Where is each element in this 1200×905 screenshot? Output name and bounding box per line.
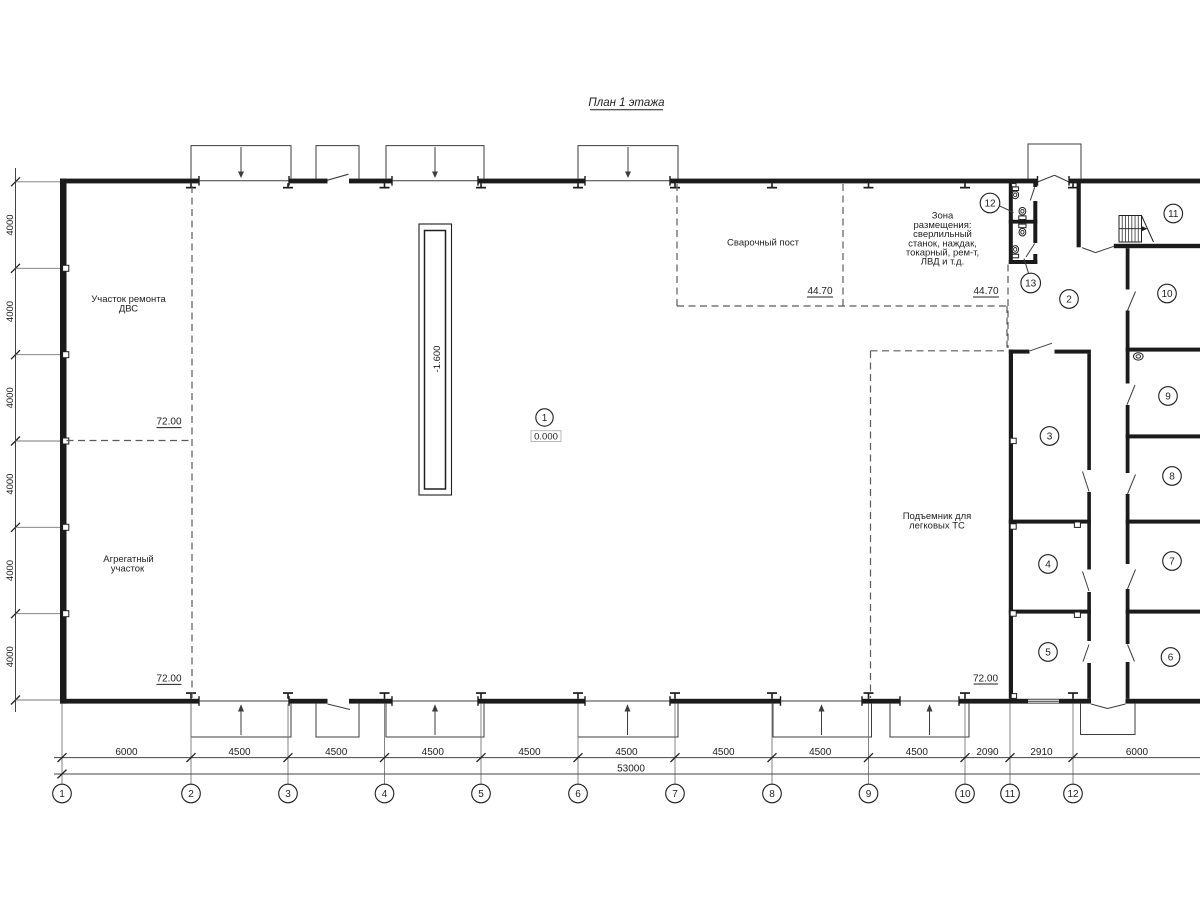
svg-text:44.70: 44.70 [973, 286, 998, 297]
svg-text:13: 13 [1025, 278, 1037, 289]
svg-text:9: 9 [866, 789, 872, 800]
svg-text:4500: 4500 [518, 747, 541, 758]
svg-text:легковых ТС: легковых ТС [909, 521, 965, 532]
svg-text:7: 7 [1169, 556, 1175, 567]
svg-text:4500: 4500 [712, 747, 735, 758]
svg-text:53000: 53000 [617, 764, 645, 775]
svg-text:5: 5 [478, 789, 484, 800]
svg-text:4000: 4000 [5, 214, 16, 235]
svg-text:4000: 4000 [5, 301, 16, 322]
svg-text:6: 6 [1168, 652, 1174, 663]
svg-text:-1.600: -1.600 [432, 346, 443, 373]
svg-text:2: 2 [1066, 294, 1072, 305]
svg-text:44.70: 44.70 [807, 286, 832, 297]
svg-text:5: 5 [1045, 647, 1051, 658]
svg-text:11: 11 [1005, 789, 1016, 800]
svg-text:8: 8 [769, 789, 775, 800]
svg-text:6: 6 [575, 789, 581, 800]
svg-text:72.00: 72.00 [973, 674, 998, 685]
svg-text:8: 8 [1169, 471, 1175, 482]
svg-text:4000: 4000 [5, 474, 16, 495]
svg-text:12: 12 [1067, 789, 1079, 800]
svg-text:4500: 4500 [615, 747, 638, 758]
svg-text:4500: 4500 [228, 747, 251, 758]
svg-text:4000: 4000 [5, 646, 16, 667]
svg-text:4000: 4000 [5, 560, 16, 581]
svg-text:1: 1 [59, 789, 65, 800]
svg-text:9: 9 [1165, 391, 1171, 402]
svg-text:4: 4 [382, 789, 388, 800]
svg-text:3: 3 [1047, 431, 1053, 442]
svg-text:План 1 этажа: План 1 этажа [588, 97, 664, 109]
svg-text:72.00: 72.00 [156, 417, 181, 428]
svg-text:ДВС: ДВС [119, 304, 138, 315]
svg-text:12: 12 [984, 198, 996, 209]
svg-text:6000: 6000 [1126, 747, 1149, 758]
svg-text:72.00: 72.00 [156, 674, 181, 685]
svg-text:2090: 2090 [976, 747, 999, 758]
svg-text:11: 11 [1168, 209, 1179, 220]
svg-text:3: 3 [285, 789, 291, 800]
svg-text:4500: 4500 [906, 747, 929, 758]
svg-text:Сварочный пост: Сварочный пост [727, 238, 800, 249]
svg-text:4500: 4500 [325, 747, 348, 758]
svg-text:6000: 6000 [115, 747, 138, 758]
svg-text:4000: 4000 [5, 387, 16, 408]
svg-text:7: 7 [672, 789, 678, 800]
svg-text:1: 1 [542, 413, 548, 424]
svg-text:4: 4 [1045, 559, 1051, 570]
svg-text:0.000: 0.000 [534, 432, 558, 443]
svg-text:10: 10 [959, 789, 971, 800]
svg-text:4500: 4500 [809, 747, 832, 758]
svg-text:4500: 4500 [422, 747, 445, 758]
svg-text:2910: 2910 [1030, 747, 1053, 758]
svg-text:2: 2 [188, 789, 194, 800]
svg-text:ЛВД и т.д.: ЛВД и т.д. [921, 257, 965, 268]
svg-text:участок: участок [111, 564, 145, 575]
svg-text:10: 10 [1161, 289, 1173, 300]
